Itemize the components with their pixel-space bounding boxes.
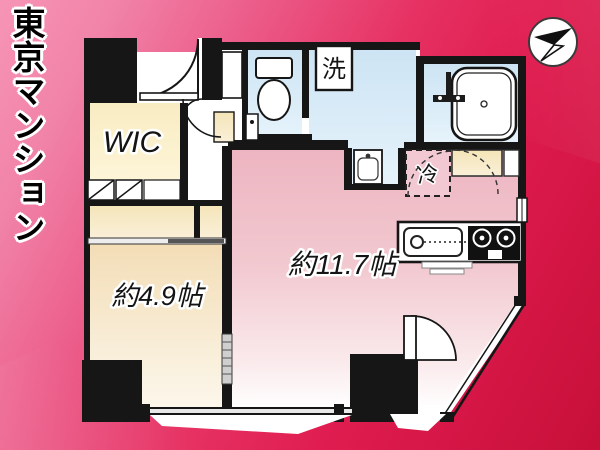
- toilet-door: [246, 114, 258, 140]
- bathtub-icon: [452, 68, 516, 140]
- refrigerator-label: 冷: [415, 161, 440, 189]
- toilet-icon: [256, 58, 292, 120]
- kitchen-cabinet-side: [504, 150, 519, 176]
- page-background: 東京マンション: [0, 0, 600, 450]
- closet-sliding-door: [88, 238, 226, 244]
- wic-label: WIC: [103, 126, 162, 159]
- entrance-door-leaf: [140, 93, 198, 100]
- stove-icon: [468, 226, 520, 260]
- kitchen-cabinet: [452, 150, 502, 176]
- balcony-slab-left: [150, 415, 352, 434]
- washing-machine-label: 洗: [322, 56, 346, 83]
- balcony-slab-right: [390, 414, 446, 431]
- bedroom-label: 約4.9帖: [111, 281, 207, 311]
- closet-folding-doors: [88, 180, 180, 200]
- window-side: [517, 198, 527, 222]
- room-closet-strip: [88, 204, 194, 238]
- room-closet-strip-right: [200, 204, 222, 238]
- wall-window-hatch: [222, 334, 232, 384]
- shoe-cabinet: [222, 52, 242, 98]
- vanity-icon: [354, 150, 382, 184]
- floorplan: 洗 冷: [0, 0, 600, 450]
- living-label: 約11.7帖: [288, 249, 400, 280]
- balcony-door-leaf: [404, 316, 416, 360]
